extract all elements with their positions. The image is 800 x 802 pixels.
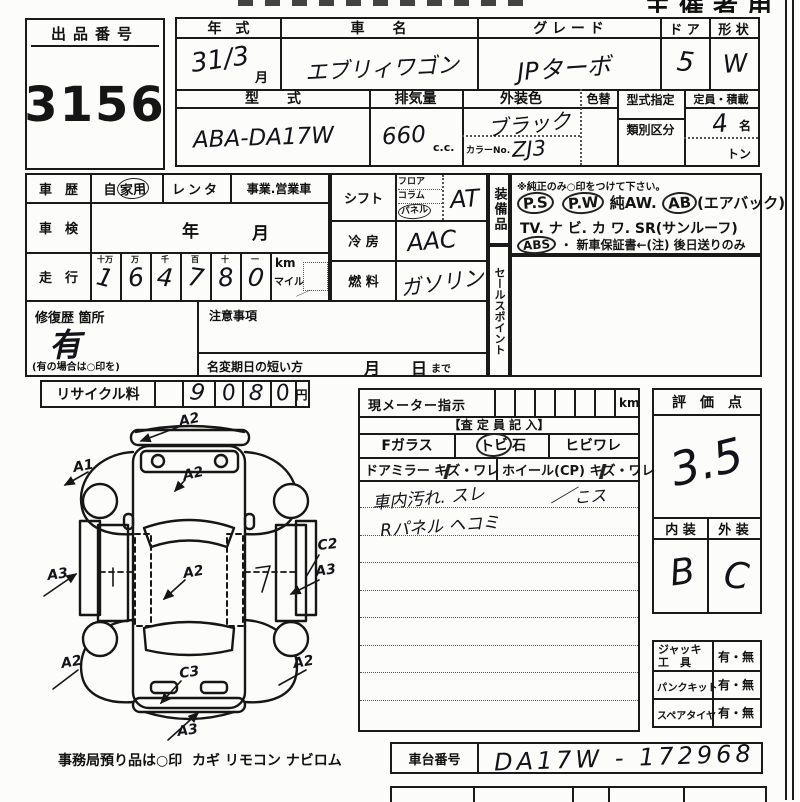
- organizer-label-clipped: 主催者用: [645, 0, 790, 13]
- tool-row-jack: ジャッキ工 具: [658, 643, 701, 669]
- ac-value: AAC: [406, 225, 458, 257]
- recycle-digit: 8: [248, 380, 265, 406]
- wheel-front-right: [274, 484, 308, 518]
- recycle-digit: 0: [220, 380, 237, 407]
- specs-box: シフト フロア コラム パネル AT 冷 房 AAC 燃 料 ガソリン: [330, 173, 488, 302]
- inspection-label: 車 検: [27, 202, 90, 252]
- ab-circled: AB: [661, 191, 697, 215]
- car-damage-diagram: A2 A1 A2 A3 A2 C2 A3 A2 A2 C3 A3: [38, 410, 358, 750]
- clipped-title-marks: [238, 0, 528, 6]
- rear-window: [144, 622, 234, 655]
- year-header: 年 式: [177, 19, 280, 37]
- history-private: 自家用: [90, 175, 162, 202]
- stone-chip-option: トビ石: [454, 433, 548, 457]
- left-sliding-door: [135, 534, 151, 626]
- shape-value: W: [722, 48, 749, 79]
- office-note: 事務局預り品は○印: [58, 750, 182, 770]
- model-header: 型 式: [177, 89, 369, 107]
- arrow-cabin: [164, 580, 185, 599]
- repair-note: (有の場合は○印を): [32, 358, 120, 373]
- model-value: ABA-DA17W: [193, 123, 335, 154]
- wheel-front-left: [83, 484, 117, 518]
- equipment-line2: P.S P.W 純AW. AB(エアバック): [517, 192, 759, 214]
- damage-mark: A3: [175, 721, 199, 740]
- inspector-note-2: Rパネル ヘコミ: [379, 508, 500, 541]
- mileage-label: 走 行: [27, 252, 90, 300]
- recycle-digit: 0: [274, 380, 292, 407]
- door-header: ド ア: [660, 19, 709, 37]
- abs-circled: ABS: [516, 235, 556, 256]
- tool-row-puncture: パンクキット: [657, 679, 718, 694]
- caution-label: 注意事項: [209, 307, 257, 324]
- grade-value: JPターボ: [516, 46, 612, 87]
- recycle-unit: 円: [295, 382, 308, 406]
- equipment-line3: TV. ナ ビ. カ ワ. SR(サンルーフ): [520, 218, 738, 238]
- exterior-label: 外 装: [707, 519, 760, 537]
- color-header: 外装色: [462, 89, 580, 107]
- mileage-digit: 0: [246, 262, 265, 293]
- capacity-value: 4: [711, 108, 730, 139]
- hand-mark-right: [256, 566, 270, 592]
- km-label: km: [275, 256, 295, 270]
- year-value: 31/3: [189, 41, 251, 79]
- sales-point-box: [510, 255, 762, 377]
- wheel-row: ホイール(CP) キズ・ワレ: [502, 460, 655, 479]
- ps-circled: P.S: [516, 191, 554, 216]
- inspector-note-1: 車内汚れ. スレ: [371, 479, 486, 514]
- door-mirror-row: ドアミラー キズ・ワレ: [365, 460, 499, 479]
- name-value: エブリィワゴン: [304, 47, 459, 87]
- damage-mark: C2: [317, 536, 339, 554]
- interior-value: B: [667, 550, 697, 594]
- shift-option-panel: パネル: [398, 204, 442, 219]
- mileage-digit: 7: [186, 262, 206, 293]
- wheel-scratch-marked: キズ: [589, 464, 615, 479]
- taillight-right: [201, 682, 227, 693]
- rating-box: 評 価 点 3.5 内 装 外 装 B C: [652, 388, 762, 614]
- mileage-digit: 6: [127, 262, 145, 292]
- history-label: 車 歴: [27, 175, 90, 202]
- right-sliding-door: [227, 534, 243, 626]
- office-items: カギ リモコン ナビロム: [192, 750, 342, 770]
- capacity-unit: 名: [739, 117, 751, 134]
- color-no-label: カラーNo.: [466, 143, 510, 156]
- lot-number-box: 出品番号 3156: [25, 18, 165, 170]
- damage-mark: A2: [59, 653, 83, 673]
- mileage-digit: 8: [217, 262, 236, 293]
- lot-number-label: 出品番号: [51, 23, 139, 44]
- taillight-left: [151, 682, 177, 693]
- equipment-line4: ABS ・ 新車保証書←(注) 後日送りのみ: [517, 236, 746, 254]
- month-suffix: 月: [255, 67, 268, 86]
- name-change-label: 名変期日の短い方: [207, 358, 303, 375]
- equipment-note: ※純正のみ○印をつけて下さい。: [517, 178, 665, 193]
- right-door-panel: [276, 525, 306, 621]
- recycle-digit: 9: [188, 379, 207, 407]
- aw-label: 純AW.: [610, 194, 657, 212]
- lot-number-value: 3156: [24, 77, 166, 133]
- name-change-day: 日: [411, 355, 427, 379]
- puncture-value: 有・無: [718, 676, 754, 693]
- damage-mark: A2: [181, 563, 205, 583]
- inspection-month: 月: [252, 219, 269, 244]
- auction-sheet: { "header": { "organizer_label": "主催者用",…: [0, 0, 800, 800]
- name-change-until: まで: [431, 360, 451, 375]
- vehicle-table: 年 式 車 名 グ レ ー ド ド ア 形 状 31/3 月 エブリィワゴン J…: [175, 17, 760, 167]
- headlight-right: [215, 455, 227, 467]
- damage-mark: A3: [313, 561, 337, 580]
- tool-row-spare: スペアタイヤ: [657, 707, 716, 722]
- chassis-box: 車台番号 DA17W - 172968: [390, 742, 763, 774]
- damage-mark: A2: [181, 464, 205, 484]
- interior-label: 内 装: [654, 519, 707, 537]
- inspector-note-1b: こス: [573, 482, 607, 508]
- class-division-label: 類別区分: [617, 121, 684, 137]
- exterior-value: C: [722, 555, 751, 598]
- front-glass-label: Fガラス: [360, 433, 454, 457]
- page-edge-line-outer: [792, 0, 794, 800]
- mileage-digit: 1: [94, 262, 116, 294]
- damage-mark: A1: [71, 457, 95, 477]
- equipment-box: ※純正のみ○印をつけて下さい。 P.S P.W 純AW. AB(エアバック) T…: [510, 173, 762, 255]
- color-no-value: ZJ3: [511, 136, 546, 162]
- meter-label: 現メーター指示: [368, 395, 466, 414]
- ton-label: トン: [727, 145, 751, 162]
- displacement-value: 660: [381, 122, 427, 151]
- crack-option: ヒビワレ: [548, 433, 638, 457]
- capacity-header: 定員・積載: [684, 91, 758, 107]
- shift-value: AT: [449, 184, 480, 214]
- color-change-header: 色替: [580, 89, 617, 107]
- mirror-right: [245, 514, 254, 529]
- name-header: 車 名: [280, 19, 477, 37]
- history-rental: レンタ: [162, 175, 230, 202]
- mirror-scratch-marked: キズ: [434, 464, 460, 479]
- chassis-value: DA17W - 172968: [494, 739, 756, 776]
- damage-mark: A3: [45, 565, 69, 584]
- type-designation-label: 型式指定: [617, 91, 684, 107]
- meter-box: 現メーター指示 km 【査 定 員 記 入】 Fガラス トビ石 ヒビワレ ドアミ…: [358, 388, 640, 732]
- caution-box: 注意事項 名変期日の短い方 月 日 まで: [197, 300, 488, 377]
- shape-header: 形 状: [709, 19, 758, 37]
- arrow-rear-left: [53, 670, 78, 689]
- jack-value: 有・無: [718, 648, 754, 665]
- airbag-label: (エアバック): [697, 194, 785, 212]
- fuel-value: ガソリン: [398, 261, 485, 302]
- inspector-entry-label: 【査 定 員 記 入】: [360, 416, 638, 433]
- organizer-label: 主催者用: [645, 0, 781, 13]
- pw-circled: P.W: [561, 191, 605, 216]
- sales-point-strip: セールスポイント: [488, 245, 510, 377]
- rating-score: 3.5: [665, 427, 749, 497]
- page-edge-line-inner: [785, 0, 787, 800]
- equipment-strip: 装備品: [488, 173, 510, 245]
- ac-label: 冷 房: [332, 220, 395, 260]
- rating-label: 評 価 点: [654, 392, 760, 412]
- windshield: [144, 520, 234, 547]
- wheel-rear-left: [83, 622, 117, 656]
- recycle-box: リサイクル料 9 0 8 0 円: [40, 380, 310, 408]
- displacement-header: 排気量: [369, 89, 462, 107]
- shift-label: シフト: [332, 175, 395, 220]
- history-box: 車 歴 自家用 レンタ 事業.営業車 車 検 年 月 走 行 十万 万 千 百 …: [25, 173, 330, 302]
- mileage-digit: 4: [156, 262, 175, 293]
- displacement-unit: c.c.: [433, 141, 454, 154]
- damage-mark: C3: [178, 663, 200, 682]
- meter-unit: km: [619, 396, 639, 410]
- chassis-label: 車台番号: [392, 744, 477, 772]
- shift-option-column: コラム: [398, 190, 442, 204]
- rear-bumper: [133, 698, 245, 712]
- private-circle: 家用: [116, 177, 149, 200]
- stone-chip-circled: トビ: [475, 432, 513, 458]
- door-value: 5: [675, 46, 695, 79]
- headlight-left: [152, 455, 164, 467]
- name-change-month: 月: [364, 355, 380, 379]
- fuel-label: 燃 料: [332, 260, 395, 300]
- inspection-year: 年: [182, 217, 199, 242]
- warranty-label: ・ 新車保証書←(注) 後日送りのみ: [560, 238, 745, 252]
- grade-header: グ レ ー ド: [477, 19, 660, 37]
- history-business: 事業.営業車: [230, 175, 328, 202]
- tools-box: ジャッキ工 具 有・無 パンクキット 有・無 スペアタイヤ 有・無: [652, 640, 762, 728]
- wheel-rear-right: [274, 622, 308, 656]
- recycle-label: リサイクル料: [42, 382, 154, 406]
- shift-option-floor: フロア: [398, 176, 442, 190]
- check-mark: ／: [550, 477, 576, 512]
- damage-mark: A2: [291, 653, 315, 673]
- spare-value: 有・無: [718, 704, 754, 721]
- repair-box: 修復歴 箇所 有 (有の場合は○印を): [25, 300, 199, 377]
